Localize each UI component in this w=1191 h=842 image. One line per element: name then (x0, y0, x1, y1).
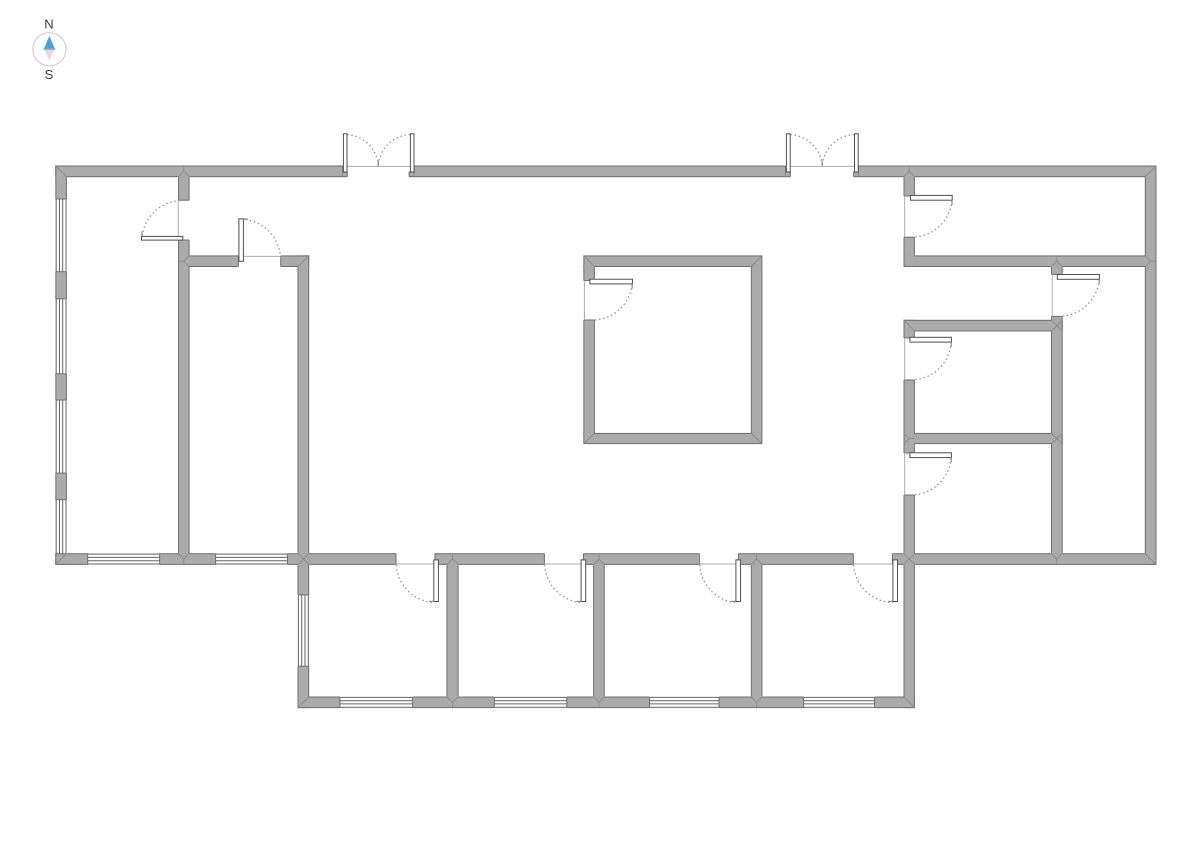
svg-text:S: S (45, 67, 54, 82)
svg-text:N: N (44, 17, 53, 32)
